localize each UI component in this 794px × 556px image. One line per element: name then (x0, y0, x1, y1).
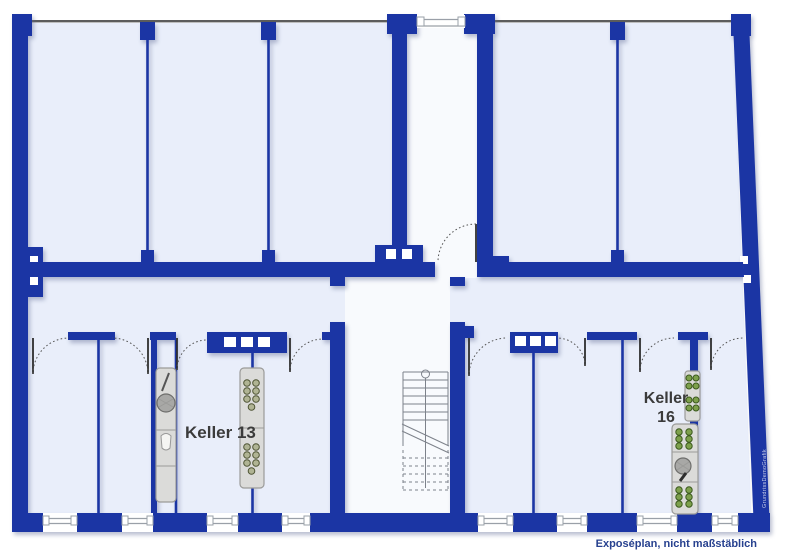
divider-pier (140, 22, 155, 40)
divider-pier (610, 22, 625, 40)
junction-cutout (386, 249, 396, 259)
shelf-unit-keller13 (156, 368, 176, 502)
watermark: GrundrissDemoGrafik (762, 449, 768, 508)
stair-wall-pier (450, 277, 465, 286)
compartment-head-wall (587, 332, 637, 340)
compartment-head-wall (150, 332, 176, 340)
window-icon (637, 513, 677, 532)
vent-opening-icon (545, 336, 556, 346)
window-icon (43, 513, 77, 532)
glove-icon (161, 434, 171, 451)
corridor-right-foot (477, 256, 509, 277)
divider-foot (141, 250, 154, 262)
compartment-16-label-line2: 16 (657, 409, 675, 426)
window-icon (478, 513, 513, 532)
left-outer-wall (12, 22, 28, 532)
door-hinge-block (465, 326, 474, 338)
top-boundary-line (12, 20, 750, 22)
stair-wall-pier (330, 277, 345, 286)
junction-cutout (402, 249, 412, 259)
entrance-corridor (407, 23, 477, 263)
window-icon (712, 513, 738, 532)
divider-pier (261, 22, 276, 40)
stair-hall (345, 277, 450, 513)
junction-cutout (30, 277, 38, 285)
top-right-corner-pier (731, 14, 751, 36)
middle-wall-right (477, 262, 744, 277)
corridor-passage (435, 262, 477, 278)
compartment-head-wall (68, 332, 115, 340)
plan-disclaimer: Exposéplan, nicht maßstäblich (596, 538, 758, 550)
corridor-left-foot (375, 245, 423, 262)
window-icon (282, 513, 310, 532)
compartment-16-label-line1: Keller (644, 390, 688, 407)
divider-foot (262, 250, 275, 262)
window-icon (557, 513, 587, 532)
corridor-left-wall (392, 22, 407, 248)
vent-opening-icon (224, 337, 236, 347)
compartment-13-label: Keller 13 (185, 423, 256, 442)
vent-opening-icon (241, 337, 253, 347)
compartment-head-wall (322, 332, 345, 340)
window-icon (207, 513, 238, 532)
window-icon (417, 15, 465, 28)
vent-opening-icon (258, 337, 270, 347)
corridor-right-wall (477, 22, 493, 262)
compartment-head-wall (678, 332, 708, 340)
stair-left-wall (330, 322, 345, 513)
stair-right-wall (450, 322, 465, 513)
vent-opening-icon (530, 336, 541, 346)
divider-foot (611, 250, 624, 262)
floor-plan-page: Keller 13 Keller 16 Exposéplan, nicht ma… (0, 0, 794, 556)
middle-wall-left (28, 262, 435, 277)
vent-opening-icon (515, 336, 526, 346)
floor-plan-svg: Keller 13 Keller 16 Exposéplan, nicht ma… (0, 0, 794, 556)
junction-cutout (743, 275, 751, 283)
window-icon (122, 513, 153, 532)
